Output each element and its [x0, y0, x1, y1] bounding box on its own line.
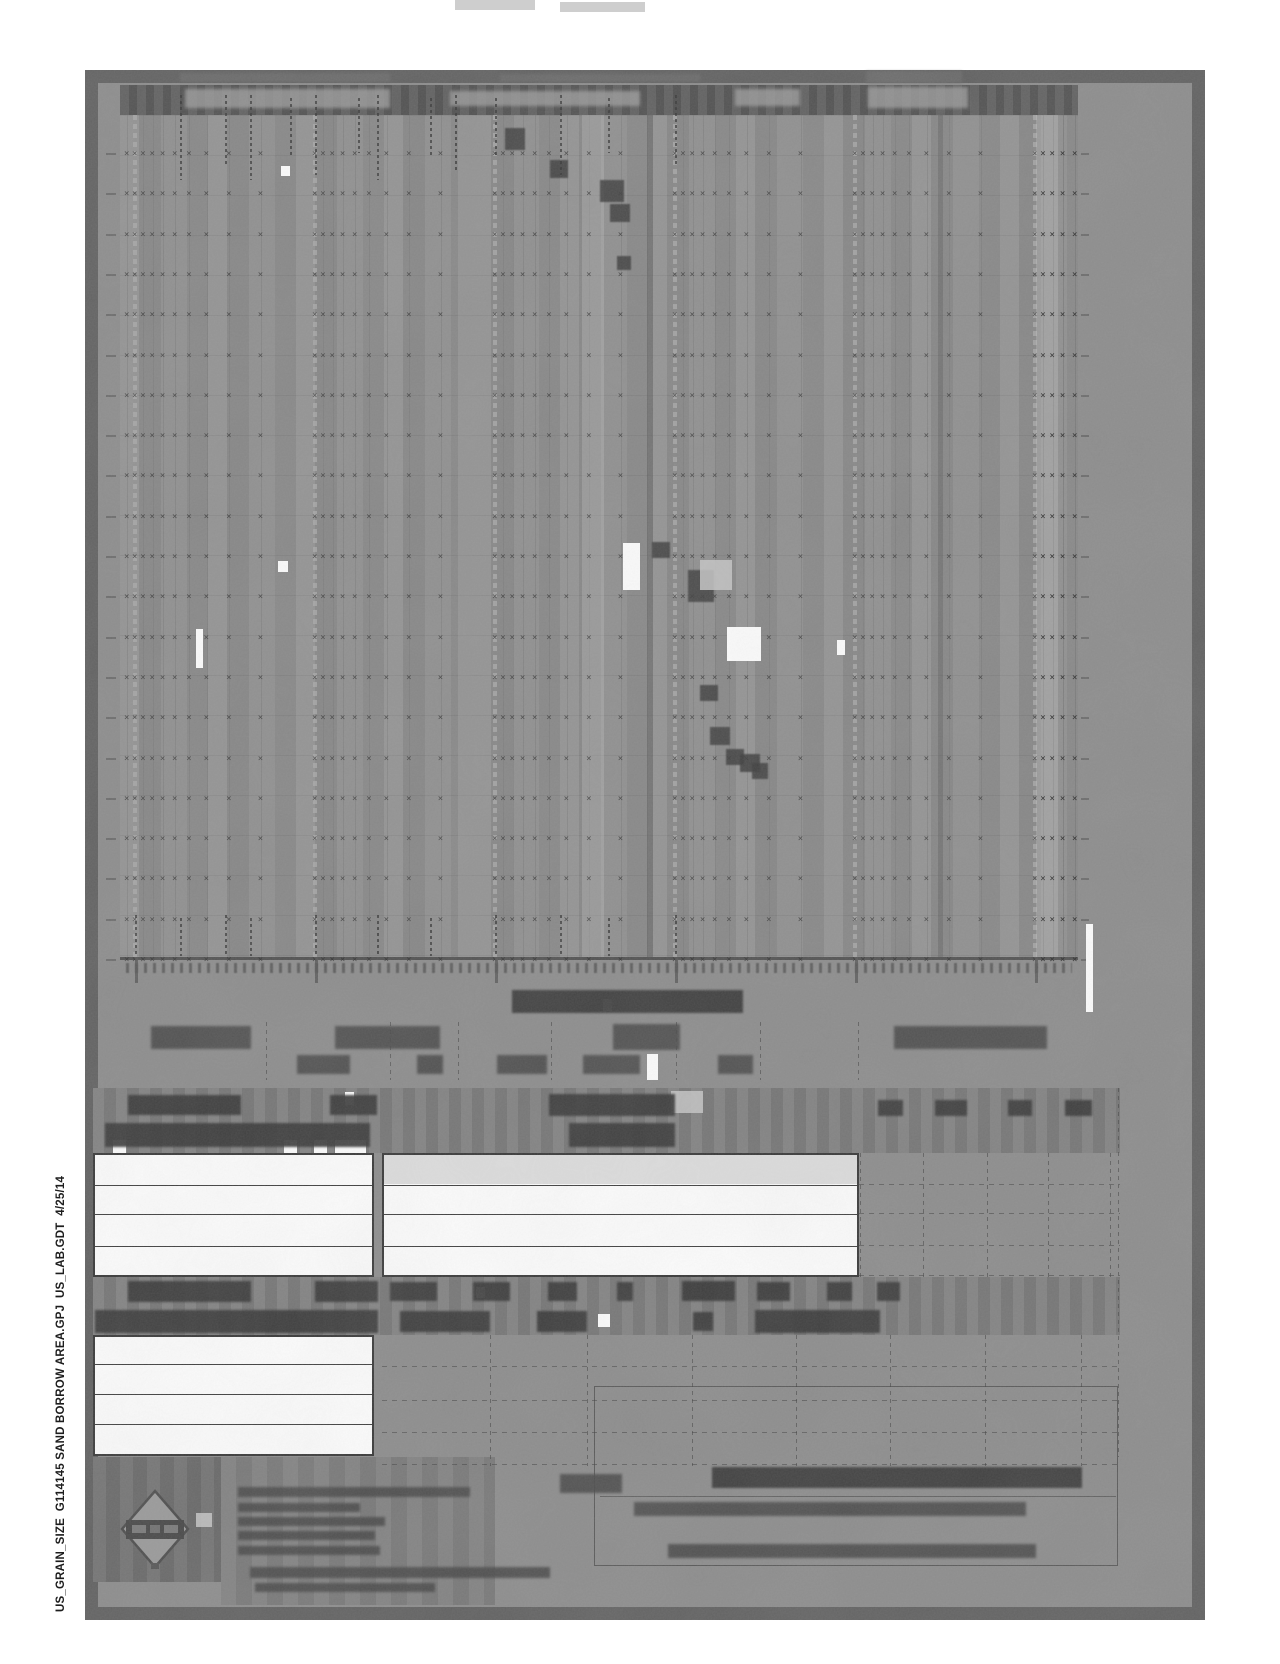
classification-labels-smudge [894, 1026, 1047, 1049]
x-mark-icon: × [132, 472, 137, 480]
classification-divider [858, 1022, 859, 1080]
x-mark-icon: × [352, 150, 357, 158]
x-mark-icon: × [978, 472, 983, 480]
x-mark-icon: × [766, 472, 771, 480]
x-mark-icon: × [870, 392, 875, 400]
x-mark-icon: × [798, 916, 803, 924]
title-lines-smudge [560, 1474, 622, 1493]
x-mark-icon: × [226, 956, 231, 964]
x-mark-icon: × [160, 593, 165, 601]
x-mark-icon: × [320, 956, 325, 964]
x-mark-icon: × [124, 875, 129, 883]
title-heading-smudge [712, 1467, 1082, 1488]
x-mark-icon: × [510, 795, 515, 803]
table1-row-line [859, 1184, 1120, 1185]
table1-rowline [384, 1246, 857, 1247]
minor-gridline [409, 115, 410, 957]
symbol-row: ××××××××××××××××××××××××××××××××××××××××… [120, 513, 1078, 521]
x-mark-icon: × [586, 553, 591, 561]
x-mark-icon: × [140, 472, 145, 480]
x-mark-icon: × [546, 714, 551, 722]
x-mark-icon: × [946, 755, 951, 763]
x-mark-icon: × [320, 795, 325, 803]
x-mark-icon: × [546, 190, 551, 198]
company-lines-smudge [238, 1487, 470, 1497]
x-mark-icon: × [384, 311, 389, 319]
y-tick-dash [106, 596, 116, 598]
x-mark-icon: × [924, 835, 929, 843]
x-mark-icon: × [330, 553, 335, 561]
x-mark-icon: × [924, 916, 929, 924]
x-mark-icon: × [880, 835, 885, 843]
y-tick-dash [1081, 153, 1089, 155]
x-mark-icon: × [672, 674, 677, 682]
x-mark-icon: × [320, 392, 325, 400]
x-mark-icon: × [186, 795, 191, 803]
y-tick-dash [106, 838, 116, 840]
x-mark-icon: × [132, 835, 137, 843]
x-mark-icon: × [186, 311, 191, 319]
x-mark-icon: × [564, 271, 569, 279]
x-mark-icon: × [700, 311, 705, 319]
x-mark-icon: × [520, 150, 525, 158]
x-mark-icon: × [204, 392, 209, 400]
symbol-row: ××××××××××××××××××××××××××××××××××××××××… [120, 553, 1078, 561]
x-mark-icon: × [312, 271, 317, 279]
x-mark-icon: × [618, 714, 623, 722]
x-mark-icon: × [798, 553, 803, 561]
x-mark-icon: × [492, 432, 497, 440]
x-mark-icon: × [172, 634, 177, 642]
x-mark-icon: × [1040, 311, 1045, 319]
x-mark-icon: × [330, 875, 335, 883]
x-mark-icon: × [124, 755, 129, 763]
x-mark-icon: × [672, 714, 677, 722]
table1-header-row1-smudge [549, 1094, 675, 1116]
x-mark-icon: × [532, 795, 537, 803]
x-mark-icon: × [258, 392, 263, 400]
x-mark-icon: × [150, 352, 155, 360]
x-mark-icon: × [438, 150, 443, 158]
symbol-row: ××××××××××××××××××××××××××××××××××××××××… [120, 674, 1078, 682]
x-mark-icon: × [520, 513, 525, 521]
x-mark-icon: × [406, 916, 411, 924]
x-mark-icon: × [366, 956, 371, 964]
x-mark-icon: × [880, 875, 885, 883]
x-mark-icon: × [946, 674, 951, 682]
tonal-stripe [1036, 115, 1058, 957]
x-mark-icon: × [880, 714, 885, 722]
x-mark-icon: × [946, 513, 951, 521]
x-mark-icon: × [978, 634, 983, 642]
table2-rowline [95, 1424, 372, 1425]
x-mark-icon: × [564, 634, 569, 642]
x-mark-icon: × [352, 231, 357, 239]
x-mark-icon: × [892, 634, 897, 642]
table1-header-row2-smudge [569, 1123, 675, 1147]
x-mark-icon: × [892, 392, 897, 400]
x-mark-icon: × [204, 352, 209, 360]
x-mark-icon: × [726, 835, 731, 843]
x-mark-icon: × [140, 231, 145, 239]
table1-header-row1-smudge [935, 1100, 967, 1116]
x-mark-icon: × [340, 150, 345, 158]
x-mark-icon: × [726, 513, 731, 521]
x-mark-icon: × [586, 271, 591, 279]
x-mark-icon: × [712, 956, 717, 964]
x-mark-icon: × [532, 835, 537, 843]
x-mark-icon: × [124, 352, 129, 360]
x-mark-icon: × [798, 150, 803, 158]
symbol-row: ××××××××××××××××××××××××××××××××××××××××… [120, 956, 1078, 964]
sieve-label-column [290, 98, 292, 158]
x-mark-icon: × [406, 593, 411, 601]
minor-gridline [355, 115, 356, 957]
x-mark-icon: × [680, 392, 685, 400]
tick-label-column [225, 915, 227, 957]
x-mark-icon: × [160, 916, 165, 924]
minor-gridline [769, 115, 770, 957]
x-mark-icon: × [852, 593, 857, 601]
x-mark-icon: × [1050, 513, 1055, 521]
x-mark-icon: × [366, 795, 371, 803]
x-mark-icon: × [672, 593, 677, 601]
x-mark-icon: × [906, 795, 911, 803]
x-mark-icon: × [946, 472, 951, 480]
x-mark-icon: × [1032, 755, 1037, 763]
x-mark-icon: × [680, 875, 685, 883]
x-mark-icon: × [766, 956, 771, 964]
x-mark-icon: × [532, 755, 537, 763]
x-mark-icon: × [312, 472, 317, 480]
x-mark-icon: × [906, 472, 911, 480]
x-mark-icon: × [520, 714, 525, 722]
x-mark-icon: × [160, 150, 165, 158]
x-mark-icon: × [564, 472, 569, 480]
x-mark-icon: × [880, 190, 885, 198]
symbol-row: ××××××××××××××××××××××××××××××××××××××××… [120, 311, 1078, 319]
x-mark-icon: × [226, 593, 231, 601]
x-mark-icon: × [586, 513, 591, 521]
x-mark-icon: × [172, 150, 177, 158]
x-mark-icon: × [586, 956, 591, 964]
minor-gridline [127, 115, 128, 957]
x-mark-icon: × [384, 714, 389, 722]
x-mark-icon: × [160, 714, 165, 722]
x-mark-icon: × [546, 472, 551, 480]
x-mark-icon: × [546, 795, 551, 803]
table2-header-row2-smudge [95, 1310, 378, 1333]
symbol-row: ××××××××××××××××××××××××××××××××××××××××… [120, 150, 1078, 158]
x-mark-icon: × [172, 231, 177, 239]
x-mark-icon: × [766, 755, 771, 763]
x-mark-icon: × [860, 392, 865, 400]
x-mark-icon: × [618, 271, 623, 279]
minor-gridline [703, 115, 704, 957]
x-mark-icon: × [384, 513, 389, 521]
tick-label-column [135, 915, 137, 957]
y-tick-dash [106, 314, 116, 316]
x-mark-icon: × [712, 916, 717, 924]
x-mark-icon: × [680, 755, 685, 763]
x-mark-icon: × [258, 150, 263, 158]
x-mark-icon: × [520, 795, 525, 803]
x-mark-icon: × [712, 875, 717, 883]
x-mark-icon: × [680, 150, 685, 158]
x-mark-icon: × [132, 795, 137, 803]
x-mark-icon: × [1072, 956, 1077, 964]
x-mark-icon: × [880, 392, 885, 400]
x-mark-icon: × [500, 553, 505, 561]
x-mark-icon: × [946, 271, 951, 279]
x-mark-icon: × [1060, 392, 1065, 400]
x-mark-icon: × [320, 513, 325, 521]
x-mark-icon: × [978, 755, 983, 763]
company-lines-smudge [238, 1517, 385, 1526]
x-mark-icon: × [870, 835, 875, 843]
classification-divider [266, 1022, 267, 1080]
x-mark-icon: × [366, 231, 371, 239]
x-mark-icon: × [186, 513, 191, 521]
x-mark-icon: × [124, 714, 129, 722]
x-mark-icon: × [1050, 432, 1055, 440]
x-mark-icon: × [586, 755, 591, 763]
x-mark-icon: × [618, 674, 623, 682]
x-mark-icon: × [132, 392, 137, 400]
x-mark-icon: × [852, 553, 857, 561]
x-mark-icon: × [744, 674, 749, 682]
x-mark-icon: × [860, 755, 865, 763]
x-mark-icon: × [924, 634, 929, 642]
x-mark-icon: × [690, 795, 695, 803]
x-mark-icon: × [438, 472, 443, 480]
x-mark-icon: × [500, 916, 505, 924]
x-mark-icon: × [618, 352, 623, 360]
x-mark-icon: × [700, 271, 705, 279]
x-mark-icon: × [520, 231, 525, 239]
y-tick-dash [106, 637, 116, 639]
x-mark-icon: × [172, 432, 177, 440]
x-mark-icon: × [258, 956, 263, 964]
x-mark-icon: × [870, 875, 875, 883]
header-ghost-smudge [450, 91, 640, 106]
x-mark-icon: × [366, 150, 371, 158]
x-mark-icon: × [172, 755, 177, 763]
x-mark-icon: × [1072, 875, 1077, 883]
x-mark-icon: × [124, 795, 129, 803]
x-mark-icon: × [1032, 352, 1037, 360]
x-mark-icon: × [906, 231, 911, 239]
x-mark-icon: × [1050, 472, 1055, 480]
x-mark-icon: × [340, 634, 345, 642]
table1-column-line [923, 1153, 924, 1277]
x-mark-icon: × [352, 956, 357, 964]
tonal-stripe [647, 115, 653, 957]
x-mark-icon: × [1050, 553, 1055, 561]
x-mark-icon: × [978, 916, 983, 924]
x-mark-icon: × [510, 714, 515, 722]
x-mark-icon: × [870, 271, 875, 279]
table2-header-row1-smudge [315, 1281, 378, 1302]
x-mark-icon: × [160, 271, 165, 279]
x-mark-icon: × [586, 593, 591, 601]
tonal-stripe [458, 115, 472, 957]
x-mark-icon: × [340, 916, 345, 924]
x-mark-icon: × [1040, 472, 1045, 480]
x-mark-icon: × [870, 714, 875, 722]
classification-sub-smudge [718, 1055, 753, 1074]
x-mark-icon: × [946, 593, 951, 601]
x-mark-icon: × [366, 190, 371, 198]
x-mark-icon: × [1072, 634, 1077, 642]
x-mark-icon: × [320, 593, 325, 601]
x-mark-icon: × [226, 835, 231, 843]
table1-header-row2-smudge [105, 1123, 370, 1147]
x-mark-icon: × [438, 634, 443, 642]
x-mark-icon: × [340, 271, 345, 279]
x-mark-icon: × [906, 674, 911, 682]
x-mark-icon: × [406, 150, 411, 158]
x-mark-icon: × [906, 271, 911, 279]
curve-data-marker [617, 256, 631, 270]
x-mark-icon: × [978, 835, 983, 843]
x-mark-icon: × [438, 835, 443, 843]
x-mark-icon: × [690, 472, 695, 480]
x-mark-icon: × [712, 150, 717, 158]
x-mark-icon: × [892, 311, 897, 319]
x-mark-icon: × [870, 553, 875, 561]
x-mark-icon: × [906, 432, 911, 440]
x-mark-icon: × [880, 634, 885, 642]
x-mark-icon: × [352, 432, 357, 440]
x-mark-icon: × [150, 392, 155, 400]
x-mark-icon: × [132, 875, 137, 883]
y-tick-dash [106, 677, 116, 679]
x-mark-icon: × [366, 916, 371, 924]
x-mark-icon: × [406, 392, 411, 400]
x-mark-icon: × [852, 875, 857, 883]
x-mark-icon: × [1072, 674, 1077, 682]
x-mark-icon: × [690, 311, 695, 319]
x-mark-icon: × [226, 553, 231, 561]
x-mark-icon: × [798, 875, 803, 883]
symbol-row: ××××××××××××××××××××××××××××××××××××××××… [120, 432, 1078, 440]
minor-gridline [621, 115, 622, 957]
x-mark-icon: × [880, 553, 885, 561]
x-mark-icon: × [406, 714, 411, 722]
x-mark-icon: × [880, 150, 885, 158]
x-mark-icon: × [340, 352, 345, 360]
x-mark-icon: × [766, 311, 771, 319]
x-mark-icon: × [892, 432, 897, 440]
x-mark-icon: × [744, 231, 749, 239]
x-mark-icon: × [226, 674, 231, 682]
minor-gridline [1075, 115, 1076, 957]
x-mark-icon: × [384, 956, 389, 964]
minor-gridline [503, 115, 504, 957]
x-mark-icon: × [520, 352, 525, 360]
x-mark-icon: × [946, 956, 951, 964]
x-mark-icon: × [1060, 714, 1065, 722]
x-mark-icon: × [924, 956, 929, 964]
x-mark-icon: × [1060, 190, 1065, 198]
classification-divider [676, 1022, 677, 1080]
x-mark-icon: × [880, 916, 885, 924]
x-mark-icon: × [726, 311, 731, 319]
table2-left-column [93, 1335, 374, 1456]
major-axis-stub [135, 957, 138, 983]
x-mark-icon: × [172, 875, 177, 883]
x-mark-icon: × [700, 755, 705, 763]
x-mark-icon: × [892, 190, 897, 198]
x-mark-icon: × [744, 875, 749, 883]
x-mark-icon: × [726, 472, 731, 480]
x-mark-icon: × [860, 432, 865, 440]
x-mark-icon: × [406, 271, 411, 279]
x-mark-icon: × [672, 190, 677, 198]
x-mark-icon: × [384, 795, 389, 803]
x-mark-icon: × [564, 875, 569, 883]
sieve-label-column [315, 95, 317, 175]
minor-gridline [683, 115, 684, 957]
x-mark-icon: × [700, 231, 705, 239]
x-mark-icon: × [860, 674, 865, 682]
major-axis-stub [1035, 957, 1038, 983]
x-mark-icon: × [744, 352, 749, 360]
x-mark-icon: × [564, 392, 569, 400]
x-mark-icon: × [160, 513, 165, 521]
x-mark-icon: × [586, 835, 591, 843]
x-mark-icon: × [892, 835, 897, 843]
minor-gridline [747, 115, 748, 957]
classification-divider [390, 1022, 391, 1080]
x-mark-icon: × [726, 956, 731, 964]
x-mark-icon: × [680, 714, 685, 722]
scan-artifact-white [647, 1054, 658, 1080]
x-mark-icon: × [258, 352, 263, 360]
x-mark-icon: × [124, 674, 129, 682]
y-tick-dash [1081, 677, 1089, 679]
x-mark-icon: × [140, 795, 145, 803]
x-mark-icon: × [1050, 352, 1055, 360]
x-mark-icon: × [946, 392, 951, 400]
x-mark-icon: × [618, 593, 623, 601]
x-mark-icon: × [132, 634, 137, 642]
x-mark-icon: × [132, 593, 137, 601]
tick-label-column [377, 915, 379, 957]
x-mark-icon: × [690, 755, 695, 763]
x-mark-icon: × [204, 835, 209, 843]
x-mark-icon: × [546, 352, 551, 360]
x-mark-icon: × [312, 352, 317, 360]
x-mark-icon: × [1060, 311, 1065, 319]
table1-header-row1-smudge [1065, 1100, 1092, 1116]
x-mark-icon: × [312, 674, 317, 682]
x-mark-icon: × [330, 835, 335, 843]
minor-gridline [207, 115, 208, 957]
x-mark-icon: × [150, 875, 155, 883]
x-mark-icon: × [340, 553, 345, 561]
x-mark-icon: × [204, 755, 209, 763]
x-mark-icon: × [492, 553, 497, 561]
x-mark-icon: × [690, 875, 695, 883]
x-mark-icon: × [546, 674, 551, 682]
x-mark-icon: × [438, 432, 443, 440]
x-mark-icon: × [860, 916, 865, 924]
x-mark-icon: × [204, 795, 209, 803]
x-mark-icon: × [766, 150, 771, 158]
header-ghost-smudge [868, 87, 968, 108]
